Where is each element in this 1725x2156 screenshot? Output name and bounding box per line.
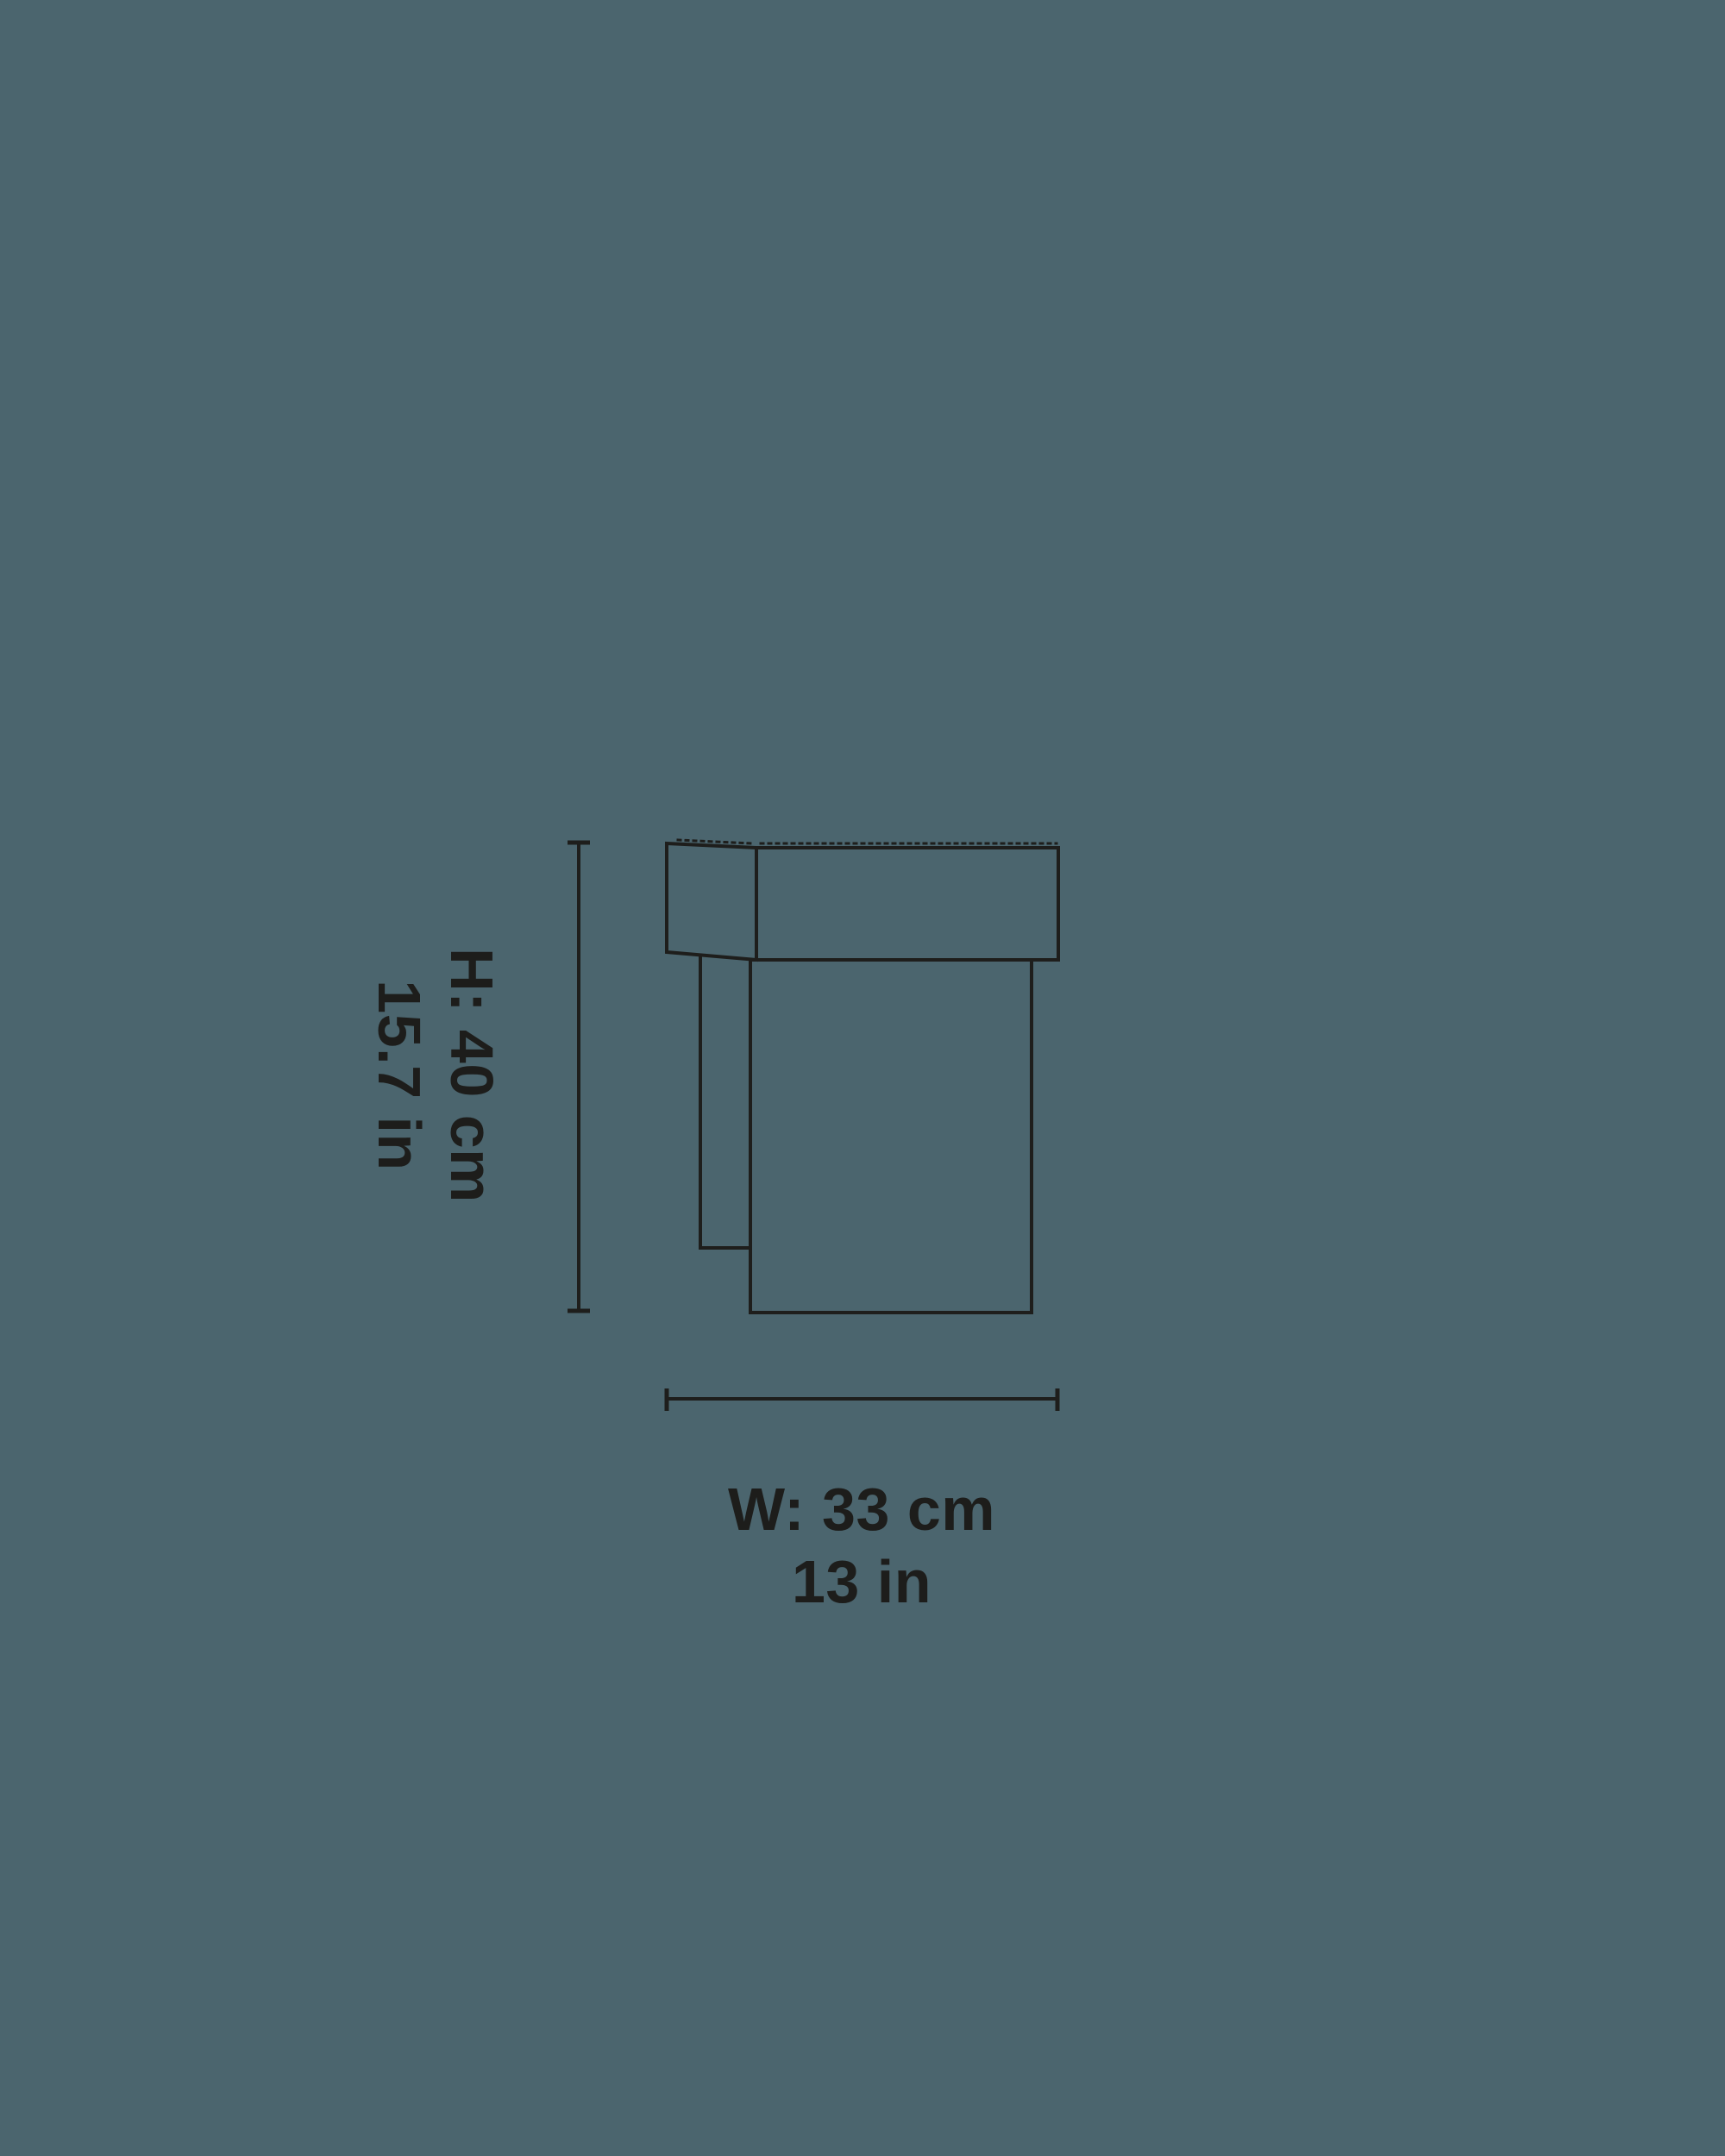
base-front-face (750, 960, 1032, 1313)
height-imperial-value: 15.7 in (363, 948, 436, 1203)
width-metric-value: W: 33 cm (728, 1473, 995, 1545)
base-side-panel (700, 956, 750, 1248)
width-dimension-line (667, 1388, 1057, 1411)
width-imperial-value: 13 in (728, 1545, 995, 1618)
height-dimension-label: H: 40 cm 15.7 in (363, 948, 508, 1203)
height-metric-value: H: 40 cm (436, 948, 508, 1203)
lid-side-panel (667, 843, 756, 960)
height-dimension-line (568, 843, 590, 1311)
furniture-outline (667, 840, 1058, 1313)
width-dimension-label: W: 33 cm 13 in (728, 1473, 995, 1618)
lid-front-face (756, 848, 1058, 960)
dimension-diagram-canvas: H: 40 cm 15.7 in W: 33 cm 13 in (0, 0, 1725, 2156)
furniture-dimension-drawing (0, 0, 1725, 2156)
